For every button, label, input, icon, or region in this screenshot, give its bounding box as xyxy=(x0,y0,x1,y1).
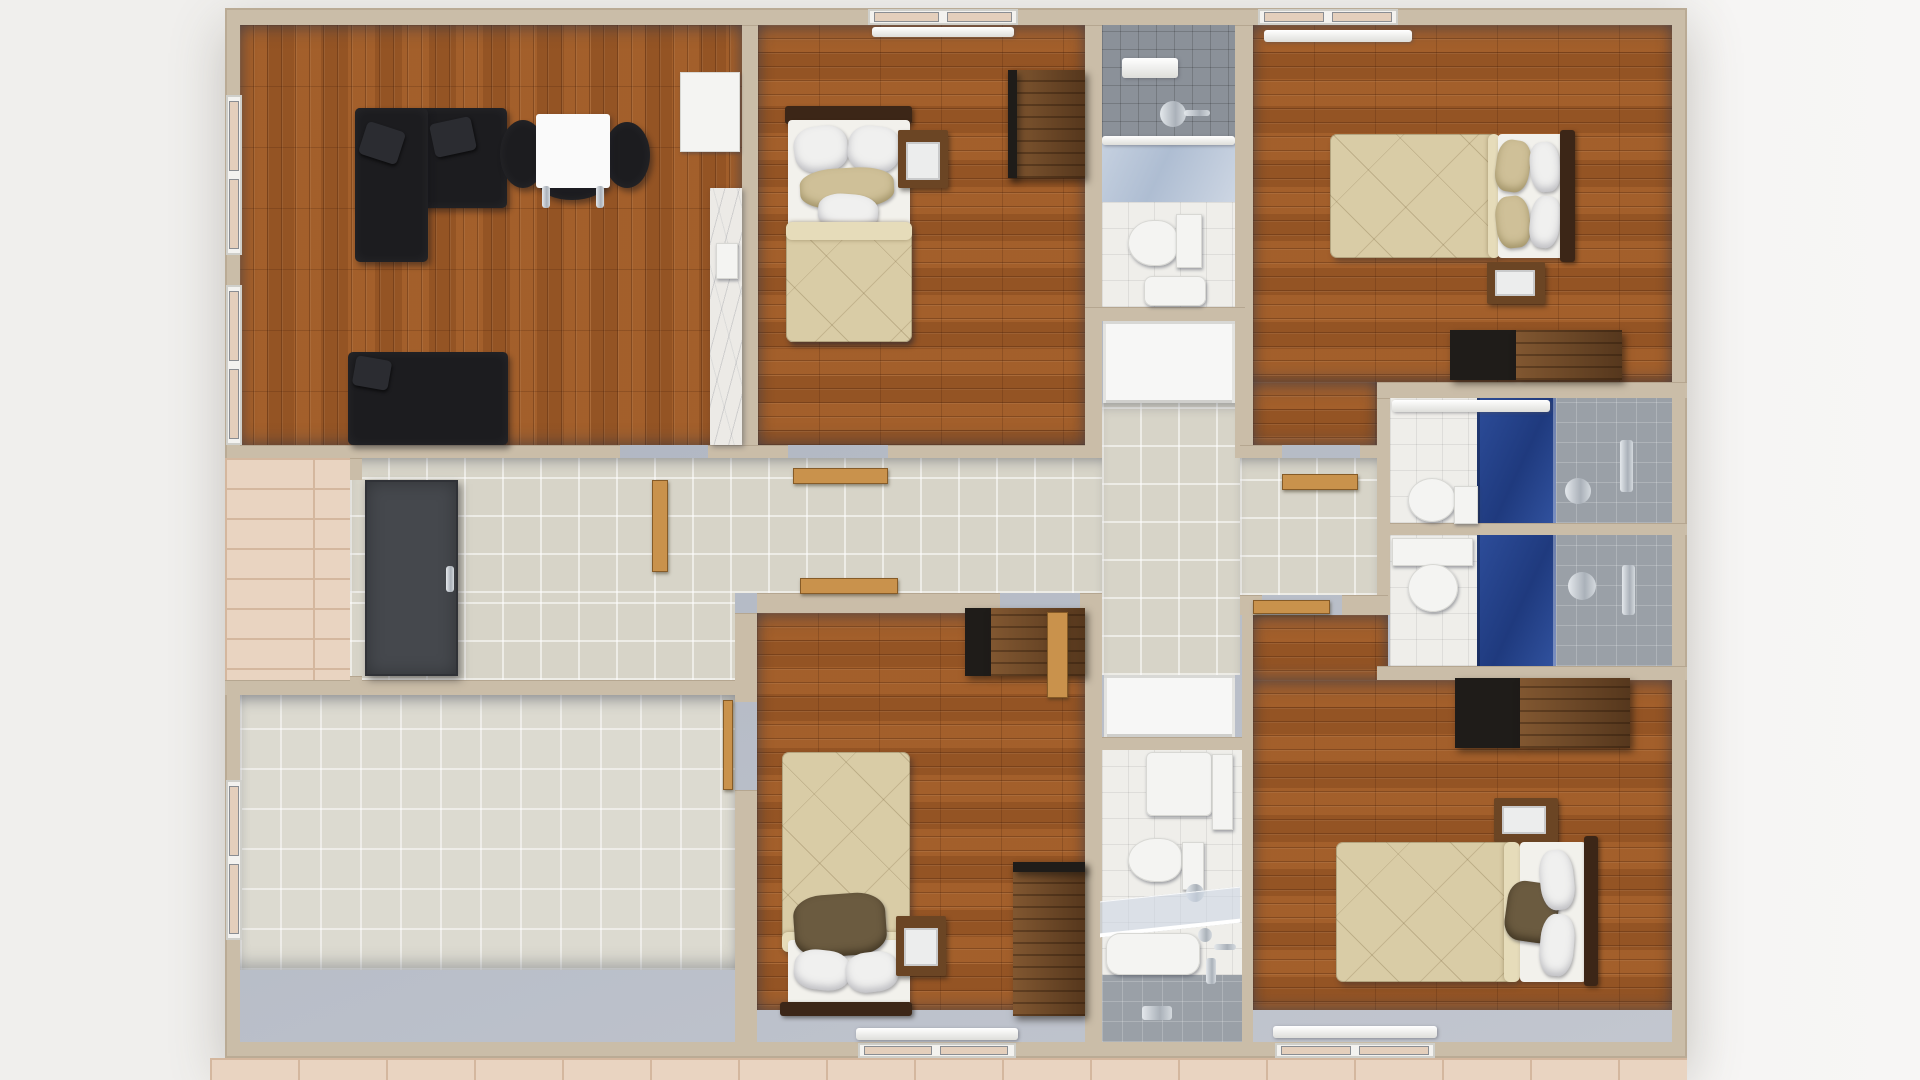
kitchen-cabinet xyxy=(680,72,740,152)
bathroom-right-lower-shower-wall xyxy=(1556,535,1672,666)
dresser-wood-section xyxy=(1520,678,1630,748)
sink xyxy=(1144,276,1206,306)
bed-comforter xyxy=(786,222,912,342)
bathroom-right-lower-shower-glass xyxy=(1477,535,1556,666)
wall xyxy=(1085,593,1102,1042)
nightstand-front xyxy=(1502,806,1546,834)
toilet-bowl xyxy=(1128,220,1178,266)
open-door-leaf xyxy=(723,700,733,790)
window-pane xyxy=(864,1046,932,1055)
shower-head-icon xyxy=(1198,928,1212,942)
cistern-shelf xyxy=(1392,538,1473,566)
wardrobe xyxy=(1008,70,1085,178)
wall xyxy=(1085,307,1245,321)
window-pane xyxy=(1359,1046,1429,1055)
nightstand-front xyxy=(906,142,940,180)
dining-table xyxy=(536,114,610,188)
wall xyxy=(1377,398,1390,615)
wall xyxy=(240,445,620,458)
wall xyxy=(1377,382,1687,398)
kitchen-sink xyxy=(716,243,738,279)
open-door-leaf xyxy=(800,578,898,594)
bed-headboard xyxy=(780,1002,912,1016)
window-pane xyxy=(229,369,239,439)
bathroom-right-upper-shower-glass xyxy=(1477,398,1556,523)
wall xyxy=(1102,737,1242,750)
table-leg xyxy=(596,186,604,208)
wall xyxy=(888,445,1085,458)
wall xyxy=(1235,25,1253,458)
wall xyxy=(1085,307,1102,458)
toilet-cistern xyxy=(1454,486,1478,524)
bed-headboard xyxy=(1560,130,1575,262)
wall xyxy=(350,458,362,480)
table-leg xyxy=(542,186,550,208)
bedroom-top-right-floor-extension xyxy=(1253,382,1377,445)
wall xyxy=(757,593,1000,613)
dresser-black-section xyxy=(1450,330,1516,380)
wall xyxy=(225,680,735,695)
open-door-leaf xyxy=(1047,612,1068,698)
floor-drain xyxy=(1142,1006,1172,1020)
shower-head-icon xyxy=(1160,101,1186,127)
bedroom-bottom-right-floor-extension xyxy=(1253,615,1388,680)
kitchen-counter xyxy=(710,188,742,445)
window-pane xyxy=(1332,12,1392,22)
shower-handle xyxy=(1620,440,1633,492)
shower-handle xyxy=(1622,565,1635,615)
window-pane xyxy=(1281,1046,1351,1055)
terrace-left xyxy=(225,458,350,692)
cabinet xyxy=(991,608,1085,676)
front-door-handle xyxy=(446,566,454,592)
toilet-bowl xyxy=(1408,564,1458,612)
bed-comforter xyxy=(1330,134,1500,258)
shower-riser xyxy=(1206,958,1216,984)
window-pane xyxy=(940,1046,1008,1055)
dresser-wood-section xyxy=(1516,330,1622,380)
window-pane xyxy=(1264,12,1324,22)
window xyxy=(226,95,242,255)
wall xyxy=(735,790,757,1042)
terrace-bottom xyxy=(210,1058,1687,1080)
wall xyxy=(742,25,758,445)
pillow-brown xyxy=(792,891,888,959)
bathroom-bottom-shower-floor xyxy=(1102,975,1242,1042)
wall xyxy=(1240,445,1282,458)
shower-arm xyxy=(1214,944,1236,950)
bathroom-top-glass-frame xyxy=(1102,136,1235,145)
window-pane xyxy=(947,12,1012,22)
toilet-bowl xyxy=(1408,478,1456,522)
wall xyxy=(735,613,757,702)
toilet-cistern xyxy=(1182,842,1204,890)
window xyxy=(226,285,242,445)
window-pane xyxy=(229,179,239,249)
shower-tray xyxy=(1106,933,1200,975)
window-sill xyxy=(856,1028,1018,1040)
open-door-leaf xyxy=(1282,474,1358,490)
sliding-door-top xyxy=(1392,400,1550,412)
open-door-leaf xyxy=(652,480,668,572)
nightstand-front xyxy=(1495,270,1535,296)
bathroom-top-glass-screen xyxy=(1102,140,1235,202)
wall xyxy=(1085,25,1102,307)
window-pane xyxy=(229,291,239,361)
ceiling-vent xyxy=(1122,58,1178,78)
vanity-sink xyxy=(1146,752,1212,816)
floor-plan-canvas xyxy=(0,0,1920,1080)
cabinet-side xyxy=(965,608,991,676)
wall xyxy=(1242,595,1253,1042)
wall xyxy=(1342,595,1388,615)
toilet-cistern xyxy=(1176,214,1202,268)
window-pelmet xyxy=(1264,30,1412,42)
nightstand-front xyxy=(904,928,938,966)
open-door-leaf xyxy=(793,468,888,484)
front-entry-door xyxy=(365,480,458,676)
wardrobe-side xyxy=(1008,70,1017,178)
wall xyxy=(1388,523,1687,535)
window-pane xyxy=(229,864,239,934)
wall xyxy=(350,676,362,692)
window xyxy=(1275,1043,1435,1058)
window-pane xyxy=(229,786,239,856)
window xyxy=(1258,9,1398,25)
window-sill xyxy=(1273,1026,1437,1038)
wall xyxy=(708,445,788,458)
loveseat-cushion xyxy=(352,355,393,391)
shower-arm xyxy=(1184,110,1210,116)
open-door-leaf xyxy=(1253,600,1330,614)
wardrobe-side xyxy=(1013,862,1085,872)
bed-comforter xyxy=(1336,842,1520,982)
window-pelmet xyxy=(872,27,1014,37)
toilet-bowl xyxy=(1128,838,1182,882)
window xyxy=(868,9,1018,25)
dresser-black-section xyxy=(1455,678,1520,748)
wardrobe xyxy=(1013,862,1085,1016)
shower-mixer-icon xyxy=(1565,478,1591,504)
storage-room-floor xyxy=(240,695,735,970)
window xyxy=(226,780,242,940)
comforter-fold xyxy=(786,222,912,240)
hallway-center-arm xyxy=(1102,403,1240,675)
sliding-panel-bathroom-bottom xyxy=(1104,675,1235,737)
window xyxy=(858,1043,1016,1058)
dining-chair-right xyxy=(604,122,650,188)
sliding-panel-bathroom-top xyxy=(1103,321,1235,403)
window-pane xyxy=(229,101,239,171)
hallway-main-band xyxy=(350,458,1102,593)
window-pane xyxy=(874,12,939,22)
bed-headboard xyxy=(1584,836,1598,986)
tall-cabinet xyxy=(1212,754,1233,830)
shower-head-icon xyxy=(1568,572,1596,600)
bathroom-right-upper-shower-wall xyxy=(1556,398,1672,523)
